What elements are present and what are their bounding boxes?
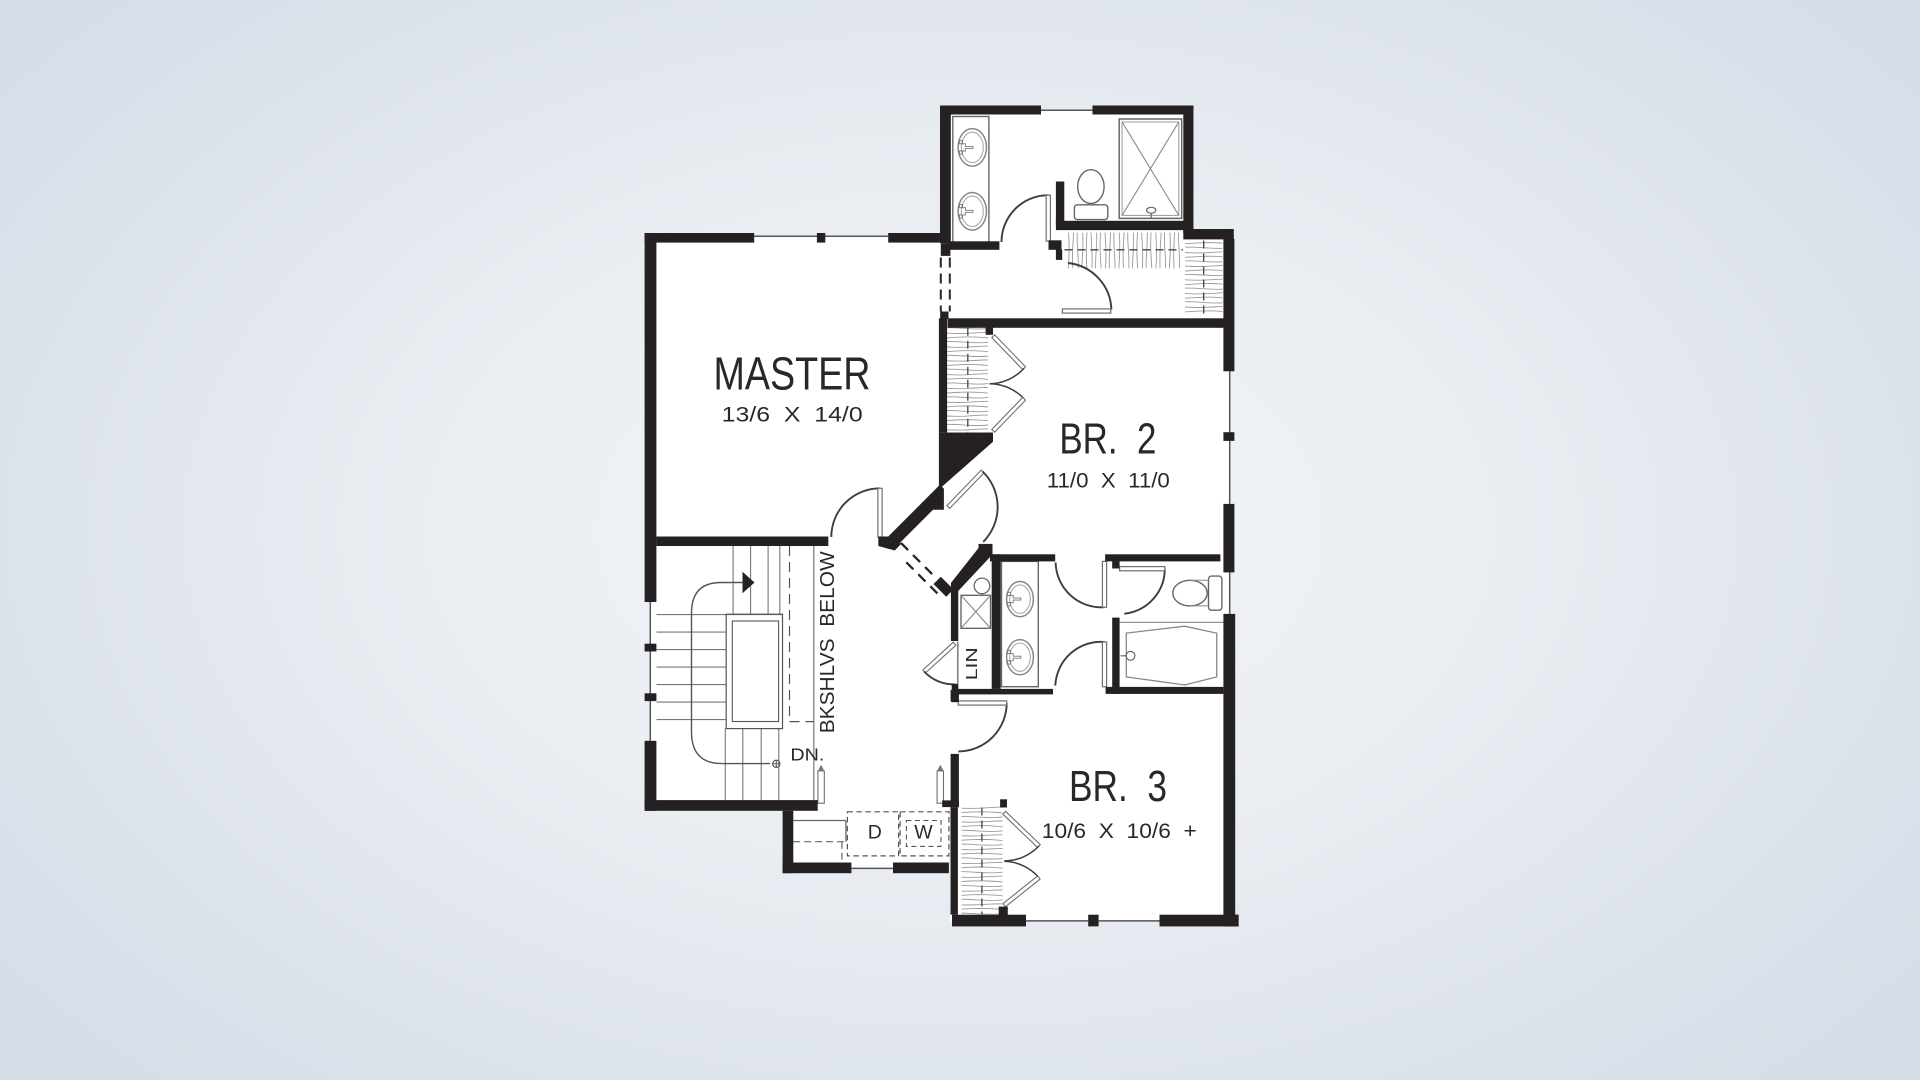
svg-text:10/6 X 10/6 +: 10/6 X 10/6 + <box>1042 820 1197 843</box>
svg-text:11/0 X 11/0: 11/0 X 11/0 <box>1047 469 1170 492</box>
svg-text:BR. 2: BR. 2 <box>1059 415 1156 464</box>
svg-text:D: D <box>868 821 882 843</box>
svg-text:W: W <box>914 821 933 843</box>
svg-text:DN.: DN. <box>790 744 824 764</box>
svg-text:13/6 X 14/0: 13/6 X 14/0 <box>722 402 863 426</box>
svg-text:LIN: LIN <box>964 647 981 680</box>
svg-text:BKSHLVS BELOW: BKSHLVS BELOW <box>817 551 839 733</box>
svg-text:BR. 3: BR. 3 <box>1069 762 1167 811</box>
svg-text:MASTER: MASTER <box>714 348 871 400</box>
